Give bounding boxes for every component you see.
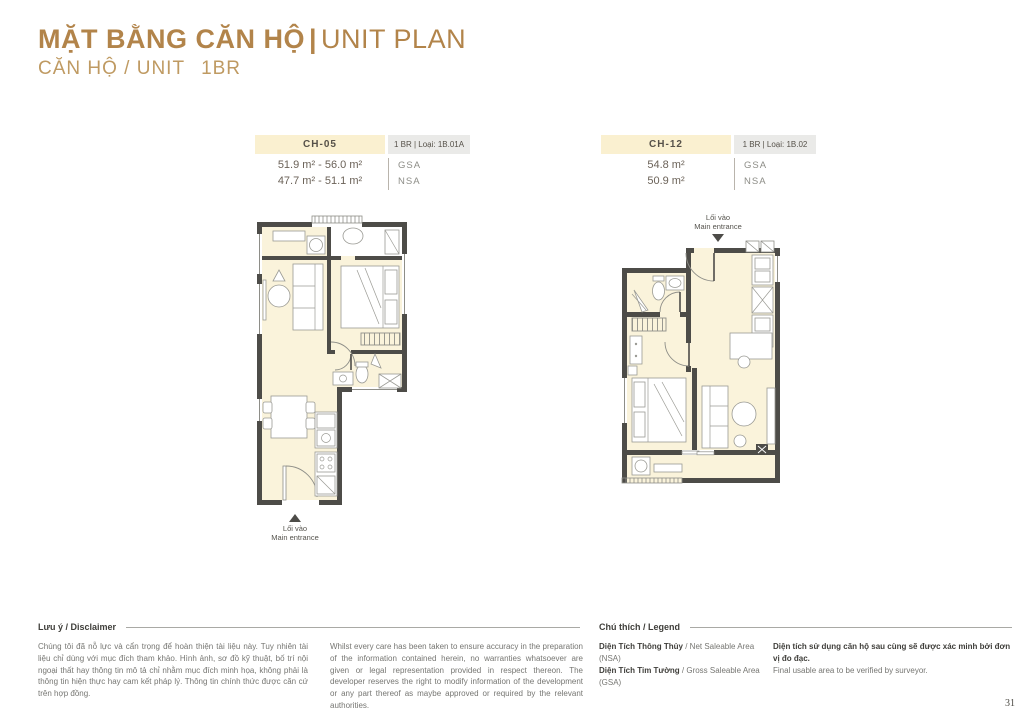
legend-heading: Chú thích / Legend (599, 622, 1012, 632)
gsa-value: 51.9 m² - 56.0 m² (255, 157, 385, 173)
heading-rule (690, 627, 1012, 628)
subtitle-label: CĂN HỘ / UNIT (38, 58, 185, 79)
entrance-en: Main entrance (250, 533, 340, 542)
page-subtitle: CĂN HỘ / UNIT1BR (38, 58, 466, 80)
entrance-label-ch05: Lối vào Main entrance (250, 514, 340, 542)
legend-item-gsa: Diện Tích Tim Tường / Gross Saleable Are… (599, 665, 769, 689)
unit-type-badge: 1 BR | Loại: 1B.01A (388, 135, 470, 154)
legend-items: Diện Tích Thông Thủy / Net Saleable Area… (599, 641, 769, 689)
brochure-page: MẶT BẰNG CĂN HỘ|UNIT PLAN CĂN HỘ / UNIT1… (0, 0, 1031, 728)
unit-ch05-areas: 51.9 m² - 56.0 m² 47.7 m² - 51.1 m² GSA … (255, 157, 421, 190)
heading-rule (126, 627, 580, 628)
unit-code-badge: CH-12 (601, 135, 731, 154)
entrance-vn: Lối vào (673, 213, 763, 222)
unit-code-badge: CH-05 (255, 135, 385, 154)
page-header: MẶT BẰNG CĂN HỘ|UNIT PLAN CĂN HỘ / UNIT1… (38, 24, 466, 80)
subtitle-unit-type: 1BR (201, 58, 241, 79)
gsa-label: GSA (744, 158, 767, 174)
gsa-label: GSA (398, 158, 421, 174)
unit-type-badge: 1 BR | Loại: 1B.02 (734, 135, 816, 154)
legend-note: Diện tích sử dụng căn hộ sau cùng sẽ đượ… (773, 641, 1013, 677)
legend-note-vn: Diện tích sử dụng căn hộ sau cùng sẽ đượ… (773, 641, 1013, 665)
unit-ch12-areas: 54.8 m² 50.9 m² GSA NSA (601, 157, 767, 190)
title-vietnamese: MẶT BẰNG CĂN HỘ (38, 24, 305, 54)
floor-plan-ch05 (257, 214, 407, 510)
nsa-label: NSA (398, 174, 421, 190)
disclaimer-heading: Lưu ý / Disclaimer (38, 622, 580, 632)
nsa-value: 50.9 m² (601, 173, 731, 189)
legend-note-en: Final usable area to be verified by surv… (773, 665, 1013, 677)
disclaimer-text-vn: Chúng tôi đã nỗ lực và cẩn trọng để hoàn… (38, 641, 308, 700)
title-english: UNIT PLAN (321, 24, 466, 54)
unit-ch12-header: CH-12 1 BR | Loại: 1B.02 (601, 135, 816, 154)
page-number: 31 (975, 698, 1015, 709)
unit-ch05-header: CH-05 1 BR | Loại: 1B.01A (255, 135, 470, 154)
page-title: MẶT BẰNG CĂN HỘ|UNIT PLAN (38, 24, 466, 55)
legend-item-nsa: Diện Tích Thông Thủy / Net Saleable Area… (599, 641, 769, 665)
entrance-vn: Lối vào (250, 524, 340, 533)
gsa-value: 54.8 m² (601, 157, 731, 173)
floor-plan-ch12 (620, 238, 785, 488)
title-divider: | (305, 24, 321, 54)
disclaimer-heading-text: Lưu ý / Disclaimer (38, 622, 116, 632)
disclaimer-text-en: Whilst every care has been taken to ensu… (330, 641, 583, 712)
legend-heading-text: Chú thích / Legend (599, 622, 680, 632)
entrance-arrow-icon (289, 514, 301, 522)
entrance-en: Main entrance (673, 222, 763, 231)
nsa-label: NSA (744, 174, 767, 190)
nsa-value: 47.7 m² - 51.1 m² (255, 173, 385, 189)
